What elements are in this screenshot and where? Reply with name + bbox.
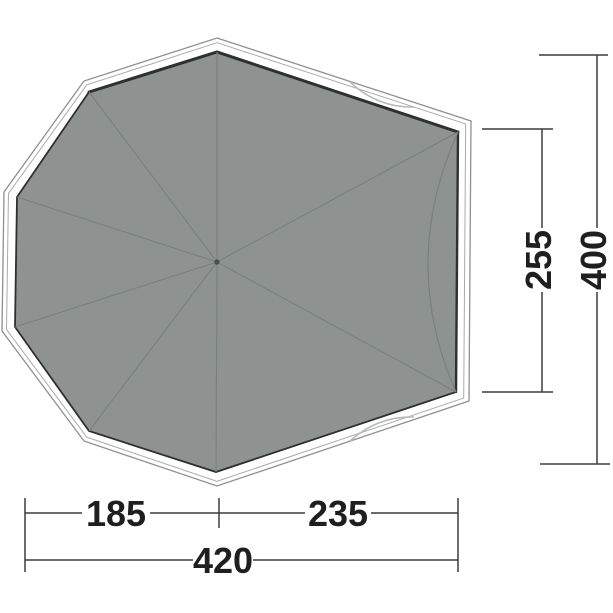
floor-panel (15, 52, 458, 472)
center-pole-point (214, 259, 219, 264)
dimension-front-height: 255 (482, 129, 559, 392)
dimension-total-width: 420 (25, 540, 458, 581)
dimension-label-total-depth: 400 (573, 230, 613, 290)
footprint-drawing: 255 400 185 235 420 (0, 0, 613, 613)
dimension-label-right-segment: 235 (308, 493, 368, 534)
tent-footprint-diagram: 255 400 185 235 420 (0, 0, 613, 613)
dimension-label-left-segment: 185 (86, 493, 146, 534)
dimension-label-front-height: 255 (518, 230, 559, 290)
dimension-label-total-width: 420 (193, 540, 253, 581)
floor-panel-group (15, 52, 458, 472)
